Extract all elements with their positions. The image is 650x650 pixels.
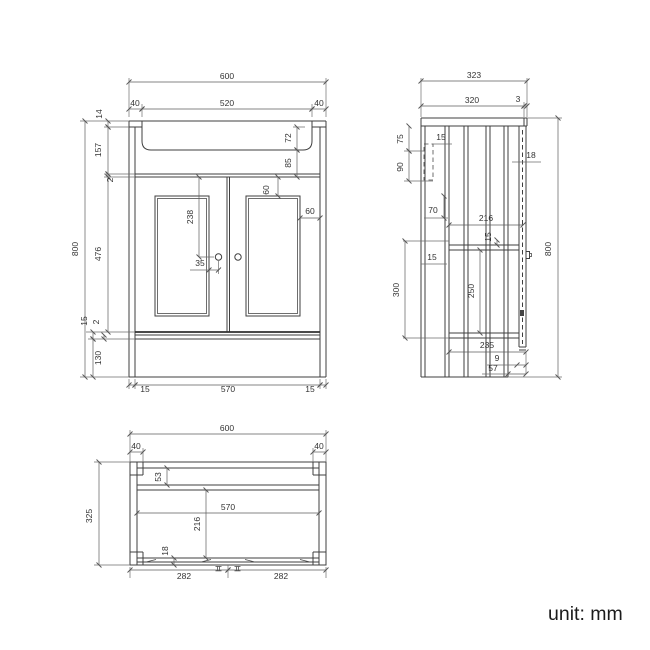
dim-plan-interior-depth: 216 xyxy=(192,517,202,531)
dim-front-apron-height: 85 xyxy=(283,158,293,168)
dim-front-base-inset-left: 15 xyxy=(140,384,150,394)
dim-side-bracket-height: 90 xyxy=(395,162,405,172)
dim-plan-front-rail: 18 xyxy=(160,546,170,556)
dim-side-door-thickness: 18 xyxy=(526,150,536,160)
dim-front-base-width: 570 xyxy=(221,384,235,394)
side-view: 323 320 3 75 15 90 70 18 216 15 15 300 2… xyxy=(391,70,562,377)
dim-front-basin-rim-left: 40 xyxy=(130,98,140,108)
front-structure xyxy=(129,121,326,377)
dim-front-top-gap: 2 xyxy=(105,177,115,182)
plan-extension-lines xyxy=(94,430,326,578)
left-door-panel xyxy=(155,196,209,316)
dim-side-overall-height: 800 xyxy=(543,242,553,256)
dim-front-plinth-height: 130 xyxy=(93,351,103,365)
dim-side-shelf-depth: 216 xyxy=(479,213,493,223)
right-door-knob xyxy=(235,254,241,260)
dim-plan-handle-span-right: 282 xyxy=(274,571,288,581)
dim-front-door-side-margin: 60 xyxy=(305,206,315,216)
front-view: 600 40 520 40 14 157 2 476 15 2 130 800 … xyxy=(70,71,326,394)
dim-front-basin-rim-right: 40 xyxy=(314,98,324,108)
dim-front-basin-depth: 72 xyxy=(283,133,293,143)
side-dimensions: 323 320 3 75 15 90 70 18 216 15 15 300 2… xyxy=(391,70,562,377)
plan-dimensions: 600 40 40 325 53 570 216 18 282 282 xyxy=(84,423,326,581)
dim-plan-overall-width: 600 xyxy=(220,423,234,433)
dim-front-door-height: 476 xyxy=(93,247,103,261)
dim-side-shelf-zone: 300 xyxy=(391,283,401,297)
dim-front-upper-section: 157 xyxy=(93,143,103,157)
side-door-knob xyxy=(526,252,530,259)
side-extension-lines xyxy=(403,78,562,377)
dim-front-bottom-gap: 2 xyxy=(91,319,101,324)
front-carcass-lines xyxy=(129,121,326,377)
dim-side-front-lip: 3 xyxy=(516,94,521,104)
dim-front-bottom-rail: 15 xyxy=(79,316,89,326)
dim-side-overall-depth: 323 xyxy=(467,70,481,80)
plan-view: 600 40 40 325 53 570 216 18 282 282 xyxy=(84,423,326,581)
dim-plan-back-rail: 53 xyxy=(153,472,163,482)
dim-plan-corner-post-left: 40 xyxy=(131,441,141,451)
side-door-knob-tip xyxy=(530,254,532,257)
unit-note: unit: mm xyxy=(548,603,623,626)
dim-side-toe-gap: 9 xyxy=(495,353,500,363)
dim-front-basin-rim-width: 520 xyxy=(220,98,234,108)
left-door-knob xyxy=(215,254,221,260)
dim-plan-interior-width: 570 xyxy=(221,502,235,512)
front-extension-lines xyxy=(80,78,326,389)
front-dimensions: 600 40 520 40 14 157 2 476 15 2 130 800 … xyxy=(70,71,326,394)
dim-plan-corner-post-right: 40 xyxy=(314,441,324,451)
dim-side-shelf-thickness: 15 xyxy=(483,232,493,242)
dim-front-overall-width: 600 xyxy=(220,71,234,81)
hinge-block xyxy=(520,310,524,316)
dim-front-overall-height: 800 xyxy=(70,242,80,256)
dim-plan-handle-span-left: 282 xyxy=(177,571,191,581)
dim-side-shelf-clearance: 250 xyxy=(466,284,476,298)
dim-front-handle-drop: 238 xyxy=(185,210,195,224)
dim-plan-overall-depth: 325 xyxy=(84,509,94,523)
dim-side-bracket-offset: 75 xyxy=(395,134,405,144)
dim-front-door-top-margin: 60 xyxy=(261,185,271,195)
dim-side-worktop-depth: 320 xyxy=(465,95,479,105)
dim-front-handle-inset: 35 xyxy=(195,258,205,268)
dim-side-shelf-edge-gap: 15 xyxy=(427,252,437,262)
dim-side-base-depth: 235 xyxy=(480,340,494,350)
dim-side-rail-drop: 70 xyxy=(428,205,438,215)
dim-front-worktop-thickness: 14 xyxy=(94,109,104,119)
dim-side-toe-recess: 57 xyxy=(488,363,498,373)
technical-drawing-page: 600 40 520 40 14 157 2 476 15 2 130 800 … xyxy=(0,0,650,650)
dim-front-base-inset-right: 15 xyxy=(305,384,315,394)
right-door-panel-inner xyxy=(249,199,298,314)
dim-side-bracket-gap: 15 xyxy=(436,132,446,142)
right-door-panel xyxy=(246,196,300,316)
vanity-unit-drawing: 600 40 520 40 14 157 2 476 15 2 130 800 … xyxy=(0,0,650,650)
